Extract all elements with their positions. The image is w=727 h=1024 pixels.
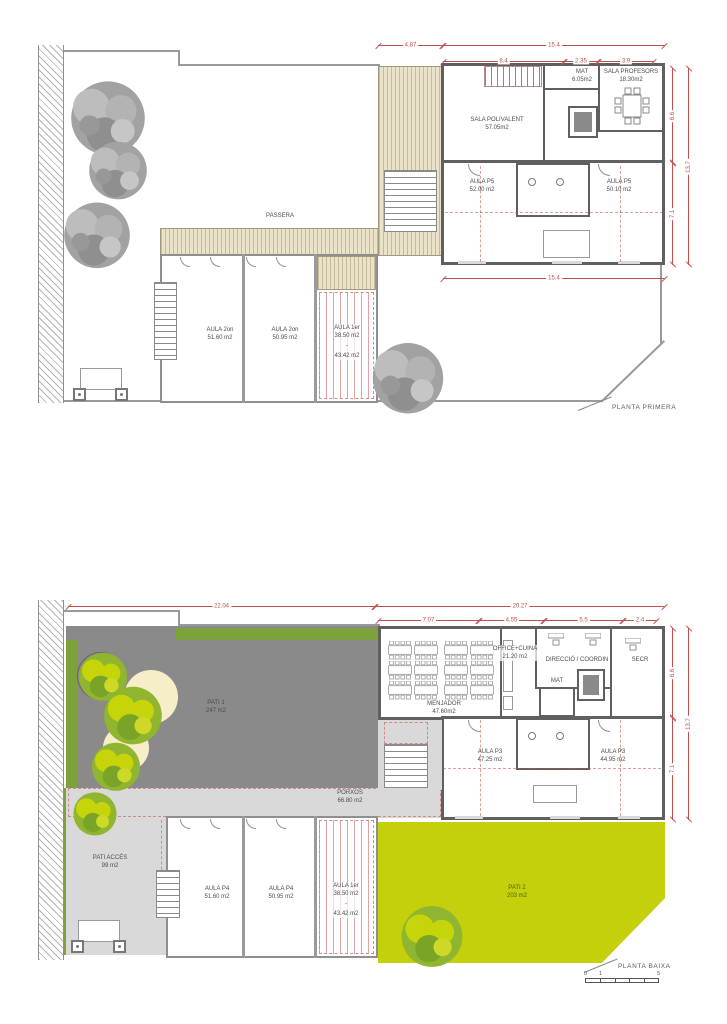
wall-segment xyxy=(598,63,600,132)
dimension-value: 6.6 xyxy=(670,109,676,121)
window xyxy=(618,261,640,264)
dimension-line: 2.4 xyxy=(623,620,657,621)
wc-fixture xyxy=(556,178,564,186)
room-name: MENJADOR xyxy=(427,700,461,708)
dimension-value: 4.55 xyxy=(504,617,520,623)
dimension-line: 2.35 xyxy=(564,61,598,62)
dimension-line: 3.9 xyxy=(598,61,654,62)
room-name: AULA P3 xyxy=(600,748,625,756)
room-label-aula-p5-b: AULA P550.10 m2 xyxy=(606,178,631,194)
room-label-sala-polivalent: SALA POLIVALENT57.05m2 xyxy=(470,116,523,132)
wall-segment xyxy=(543,63,545,163)
plan-title-baixa: PLANTA BAIXA xyxy=(618,963,671,970)
dimension-value: 13.7 xyxy=(686,716,692,732)
room-name: PATI ACCÉS xyxy=(93,854,127,862)
room-area: 57.05m2 xyxy=(470,124,523,132)
dimension-value: 7.1 xyxy=(670,763,676,775)
room-name: AULA P4 xyxy=(204,885,229,893)
room-name: DIRECCIÓ / COORDIN xyxy=(546,656,609,664)
room-area: 247 m2 xyxy=(206,707,226,715)
room-label-pati2: PATI 2203 m2 xyxy=(507,884,527,900)
room-area: 43.42 m2 xyxy=(333,910,359,918)
room-label-aula-p3-b: AULA P344.95 m2 xyxy=(600,748,625,764)
tree xyxy=(394,900,470,976)
dimension-line: 5.5 xyxy=(544,620,623,621)
window xyxy=(458,261,486,264)
room-area: 50.95 m2 xyxy=(268,893,293,901)
room-name: AULA 1er xyxy=(334,324,360,332)
tree xyxy=(56,196,138,278)
gate-post xyxy=(113,940,126,953)
room-area: 66.80 m2 xyxy=(337,797,363,805)
room-label-professors: SALA PROFESORS18.30m2 xyxy=(604,68,658,84)
site-boundary xyxy=(64,50,180,52)
scale-label-5: 5 xyxy=(657,971,660,977)
dimension-line: 4.87 xyxy=(378,45,443,46)
planter-strip xyxy=(176,628,378,640)
room-area: 47.25 m2 xyxy=(477,756,502,764)
dining-table xyxy=(414,661,438,680)
room-name: AULA 2on xyxy=(271,326,298,334)
site-boundary xyxy=(64,610,180,612)
scale-label-1: 1 xyxy=(599,971,602,977)
room-label-pati-acces: PATI ACCÉS99 m2 xyxy=(93,854,127,870)
room-area: 52.00 m2 xyxy=(469,186,494,194)
wall-segment xyxy=(242,816,245,958)
dimension-value: 2.35 xyxy=(573,58,589,64)
scale-label-0: 0 xyxy=(584,971,587,977)
dining-table xyxy=(388,661,412,680)
room-area: 50.95 m2 xyxy=(271,334,298,342)
dimension-value: 2.4 xyxy=(634,617,646,623)
elevator-cab xyxy=(574,112,592,132)
dimension-value: 7.07 xyxy=(421,617,437,623)
dining-table xyxy=(388,641,412,660)
dining-table xyxy=(444,641,468,660)
dining-table xyxy=(444,681,468,700)
stair-dashed-outline xyxy=(484,66,542,87)
desk xyxy=(625,638,641,652)
elevator-cab xyxy=(583,675,599,695)
desk xyxy=(585,633,601,647)
dimension-value: 15.4 xyxy=(546,42,562,48)
tree xyxy=(364,336,452,424)
room-label-porxos: PORXOS66.80 m2 xyxy=(337,789,363,805)
dining-table xyxy=(470,641,494,660)
window xyxy=(552,261,582,264)
scale-bar: 0 1 5 xyxy=(585,978,659,983)
room-name: AULA P3 xyxy=(477,748,502,756)
stair-dashed-outline xyxy=(384,722,428,744)
room-label-aula-2on-a: AULA 2on51.60 m2 xyxy=(206,326,233,342)
dimension-line: 15.4 xyxy=(443,278,665,279)
room-name: SALA POLIVALENT xyxy=(470,116,523,124)
exterior-stair xyxy=(154,282,177,360)
room-name: MAT xyxy=(572,68,592,76)
room-area: 44.95 m2 xyxy=(600,756,625,764)
tree xyxy=(68,788,122,842)
room-label-aula-p4-b: AULA P450.95 m2 xyxy=(268,885,293,901)
room-name: SALA PROFESORS xyxy=(604,68,658,76)
room-label-mat: MAT6.05m2 xyxy=(572,68,592,84)
room-name: PATI 2 xyxy=(507,884,527,892)
axis-dashed-line xyxy=(443,768,661,769)
wc-fixture xyxy=(528,178,536,186)
dimension-line: 6.6 xyxy=(672,628,673,718)
cabinet xyxy=(533,785,577,803)
dimension-value: 20.27 xyxy=(510,603,529,609)
exterior-stair xyxy=(156,870,180,918)
cabinet xyxy=(543,230,590,258)
room-label-secr: SECR xyxy=(632,656,649,664)
floor-plan-drawing: PASSERA SALA POLIVALENT57.05m2 MAT6.05m2… xyxy=(0,0,727,1024)
dining-table xyxy=(414,641,438,660)
dimension-line: 6.6 xyxy=(672,68,673,163)
dimension-line: 7.07 xyxy=(378,620,479,621)
room-label-aula-p5-a: AULA P552.00 m2 xyxy=(469,178,494,194)
axis-dashed-line xyxy=(620,720,621,816)
dining-table xyxy=(388,681,412,700)
bathroom-core xyxy=(516,718,590,770)
area-separator: - xyxy=(333,900,359,908)
room-area: 51.60 m2 xyxy=(206,334,233,342)
dimension-value: 5.5 xyxy=(577,617,589,623)
mat-room xyxy=(539,687,575,717)
window xyxy=(455,816,483,819)
site-edge-hatch xyxy=(38,600,64,960)
room-area: 6.05m2 xyxy=(572,76,592,84)
dimension-line: 15.4 xyxy=(443,45,665,46)
gate-post xyxy=(73,388,86,401)
room-name: AULA P5 xyxy=(469,178,494,186)
bathroom-core xyxy=(516,163,590,217)
meeting-table xyxy=(612,86,652,126)
interior-stair xyxy=(384,744,428,788)
dining-table xyxy=(444,661,468,680)
room-label-menjador: MENJADOR47.60m2 xyxy=(427,700,461,716)
wall-segment xyxy=(314,816,317,958)
room-name: PATI 1 xyxy=(206,699,226,707)
dimension-line: 4.55 xyxy=(479,620,544,621)
room-area: 38.50 m2 xyxy=(333,890,359,898)
kitchen-counter xyxy=(503,696,513,710)
dimension-line: 20.27 xyxy=(375,606,665,607)
room-name: OFFICE+CUINA xyxy=(493,645,537,653)
room-area: 203 m2 xyxy=(507,892,527,900)
room-label-aula-1er: AULA 1er 38.50 m2 - 43.42 m2 xyxy=(334,324,360,360)
axis-dashed-line xyxy=(445,212,663,213)
room-label-office: OFFICE+CUINA21.20 m2 xyxy=(493,645,537,661)
wall-segment xyxy=(242,254,245,403)
dimension-line: 13.7 xyxy=(688,68,689,265)
axis-dashed-line xyxy=(480,720,481,816)
gate-post xyxy=(115,388,128,401)
window xyxy=(550,816,580,819)
wall-segment xyxy=(500,629,502,717)
room-label-aula-1er: AULA 1er 38.50 m2 - 43.42 m2 xyxy=(333,882,359,918)
dimension-value: 13.7 xyxy=(686,159,692,175)
room-name: MAT xyxy=(551,677,563,685)
dining-table xyxy=(470,661,494,680)
room-name: AULA P4 xyxy=(268,885,293,893)
dimension-value: 3.9 xyxy=(620,58,632,64)
dining-table xyxy=(414,681,438,700)
room-label-pati1: PATI 1247 m2 xyxy=(206,699,226,715)
room-area: 47.60m2 xyxy=(427,708,461,716)
dimension-line: 7.1 xyxy=(672,718,673,820)
room-area: 38.50 m2 xyxy=(334,332,360,340)
room-label-aula-p3-a: AULA P347.25 m2 xyxy=(477,748,502,764)
room-area: 50.10 m2 xyxy=(606,186,631,194)
dimension-line: 22.04 xyxy=(68,606,375,607)
room-name: SECR xyxy=(632,656,649,664)
dimension-value: 8.4 xyxy=(497,58,509,64)
room-name: AULA P5 xyxy=(606,178,631,186)
room-name: PORXOS xyxy=(337,789,363,797)
area-separator: - xyxy=(334,342,360,350)
gate-post xyxy=(71,940,84,953)
site-boundary-diagonal xyxy=(600,340,665,403)
wc-fixture xyxy=(528,732,536,740)
dimension-value: 15.4 xyxy=(546,275,562,281)
desk xyxy=(548,633,564,647)
room-label-direccio: DIRECCIÓ / COORDIN xyxy=(546,656,609,664)
wall-segment xyxy=(543,88,600,90)
wall-segment xyxy=(610,629,612,717)
dimension-line: 7.1 xyxy=(672,163,673,265)
room-label-passera: PASSERA xyxy=(266,212,294,220)
plan-title-primera: PLANTA PRIMERA xyxy=(612,404,676,411)
wall-segment xyxy=(598,130,665,132)
room-name: AULA 1er xyxy=(333,882,359,890)
room-area: 18.30m2 xyxy=(604,76,658,84)
room-area: 51.60 m2 xyxy=(204,893,229,901)
room-name: AULA 2on xyxy=(206,326,233,334)
entrance-gate xyxy=(78,920,120,942)
leader-line xyxy=(578,397,612,411)
dimension-value: 22.04 xyxy=(212,603,231,609)
deck-strip xyxy=(317,256,376,290)
dimension-value: 6.6 xyxy=(670,667,676,679)
exterior-stair xyxy=(384,170,437,232)
room-label-aula-p4-a: AULA P451.60 m2 xyxy=(204,885,229,901)
entrance-gate xyxy=(80,368,122,390)
room-area: 21.20 m2 xyxy=(493,653,537,661)
room-area: 99 m2 xyxy=(93,862,127,870)
dimension-value: 4.87 xyxy=(403,42,419,48)
dining-table xyxy=(470,681,494,700)
wc-fixture xyxy=(556,732,564,740)
room-area: 43.42 m2 xyxy=(334,352,360,360)
dimension-line: 8.4 xyxy=(443,61,564,62)
window xyxy=(618,816,640,819)
dimension-value: 7.1 xyxy=(670,208,676,220)
dimension-line: 13.7 xyxy=(688,628,689,820)
room-label-mat: MAT xyxy=(551,677,563,685)
site-boundary xyxy=(178,64,380,66)
site-boundary xyxy=(660,265,662,344)
room-label-aula-2on-b: AULA 2on50.95 m2 xyxy=(271,326,298,342)
room-name: PASSERA xyxy=(266,212,294,220)
